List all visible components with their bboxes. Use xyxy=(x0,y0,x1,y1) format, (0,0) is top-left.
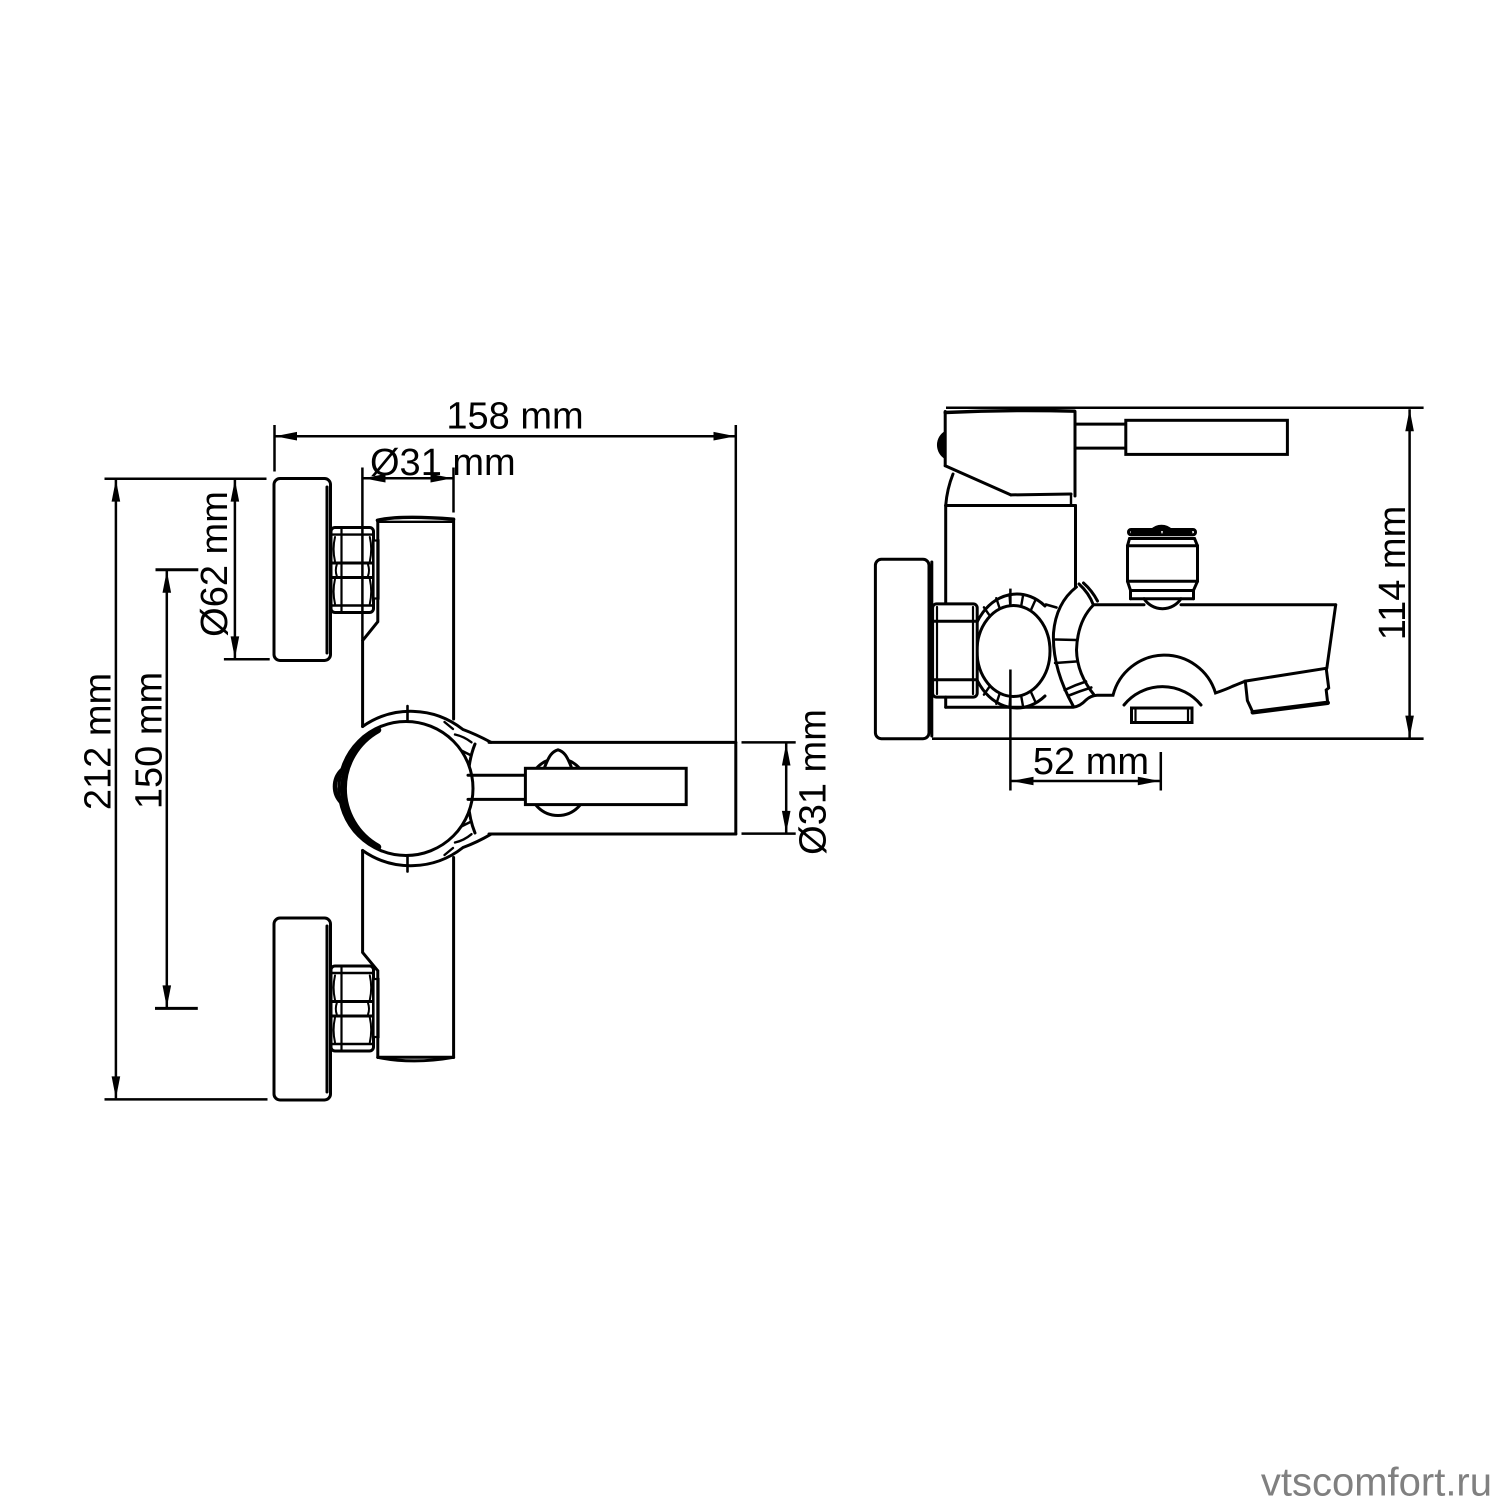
svg-text:212 mm: 212 mm xyxy=(78,673,120,810)
svg-text:52 mm: 52 mm xyxy=(1033,741,1149,783)
svg-text:114 mm: 114 mm xyxy=(1372,506,1414,640)
svg-text:158 mm: 158 mm xyxy=(446,396,583,438)
svg-text:150 mm: 150 mm xyxy=(129,672,171,809)
svg-text:Ø62 mm: Ø62 mm xyxy=(194,491,236,637)
svg-text:vtscomfort.ru: vtscomfort.ru xyxy=(1261,1461,1492,1504)
svg-text:Ø31 mm: Ø31 mm xyxy=(793,709,835,855)
svg-text:Ø31 mm: Ø31 mm xyxy=(370,442,516,484)
